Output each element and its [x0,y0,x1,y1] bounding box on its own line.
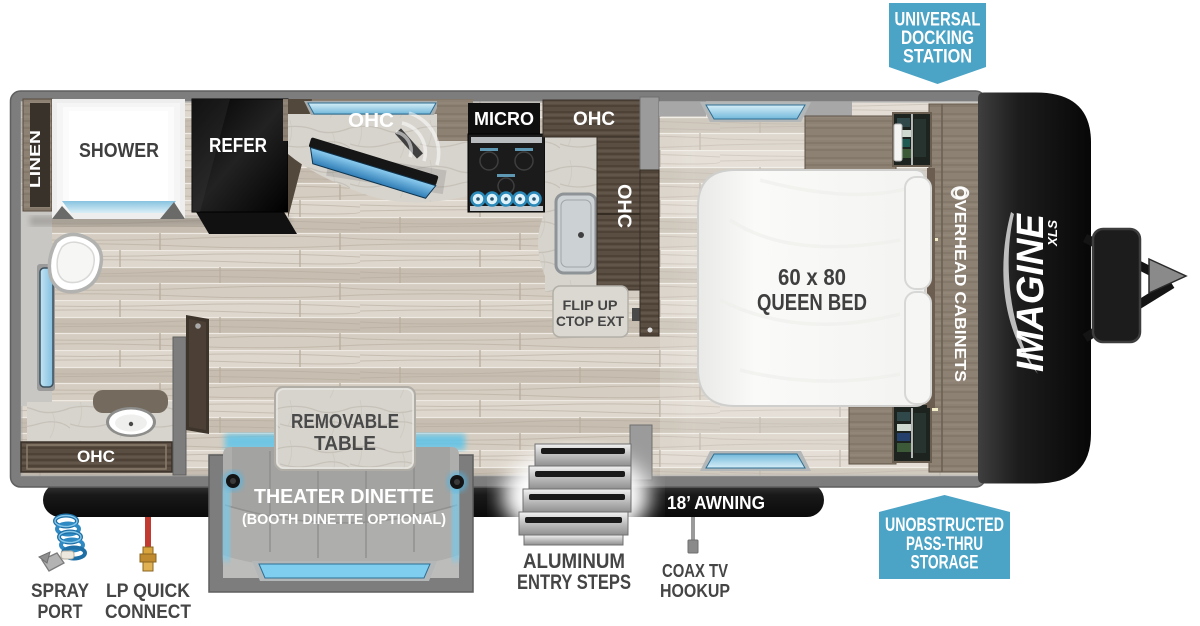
svg-text:OVERHEAD CABINETS: OVERHEAD CABINETS [951,186,968,382]
svg-text:UNOBSTRUCTED: UNOBSTRUCTED [885,515,1004,536]
svg-text:REFER: REFER [209,135,267,157]
svg-text:OHC: OHC [348,110,394,132]
svg-text:HOOKUP: HOOKUP [660,581,730,601]
svg-text:CTOP EXT: CTOP EXT [556,314,625,329]
svg-text:(BOOTH DINETTE OPTIONAL): (BOOTH DINETTE OPTIONAL) [242,512,446,528]
svg-text:STATION: STATION [903,47,972,68]
svg-text:COAX TV: COAX TV [662,561,728,581]
svg-text:THEATER DINETTE: THEATER DINETTE [254,486,434,508]
svg-text:18’ AWNING: 18’ AWNING [667,493,765,513]
svg-text:ENTRY STEPS: ENTRY STEPS [517,571,631,594]
svg-text:OHC: OHC [573,109,615,130]
svg-text:OHC: OHC [613,184,634,228]
svg-text:REMOVABLE: REMOVABLE [291,411,399,433]
svg-text:LP QUICK: LP QUICK [106,581,190,602]
svg-text:60 x 80: 60 x 80 [778,264,846,290]
svg-text:FLIP UP: FLIP UP [563,298,618,313]
svg-text:LINEN: LINEN [27,130,44,188]
svg-text:OHC: OHC [77,447,115,466]
svg-text:STORAGE: STORAGE [911,553,979,574]
svg-text:ALUMINUM: ALUMINUM [523,550,625,573]
svg-text:SHOWER: SHOWER [79,140,159,162]
svg-text:MICRO: MICRO [474,109,534,129]
svg-text:CONNECT: CONNECT [105,602,191,623]
svg-text:TABLE: TABLE [314,433,376,455]
svg-text:SPRAY: SPRAY [31,581,89,602]
svg-text:QUEEN BED: QUEEN BED [757,289,867,315]
svg-text:PORT: PORT [38,602,83,623]
svg-text:XLS: XLS [1045,220,1060,247]
